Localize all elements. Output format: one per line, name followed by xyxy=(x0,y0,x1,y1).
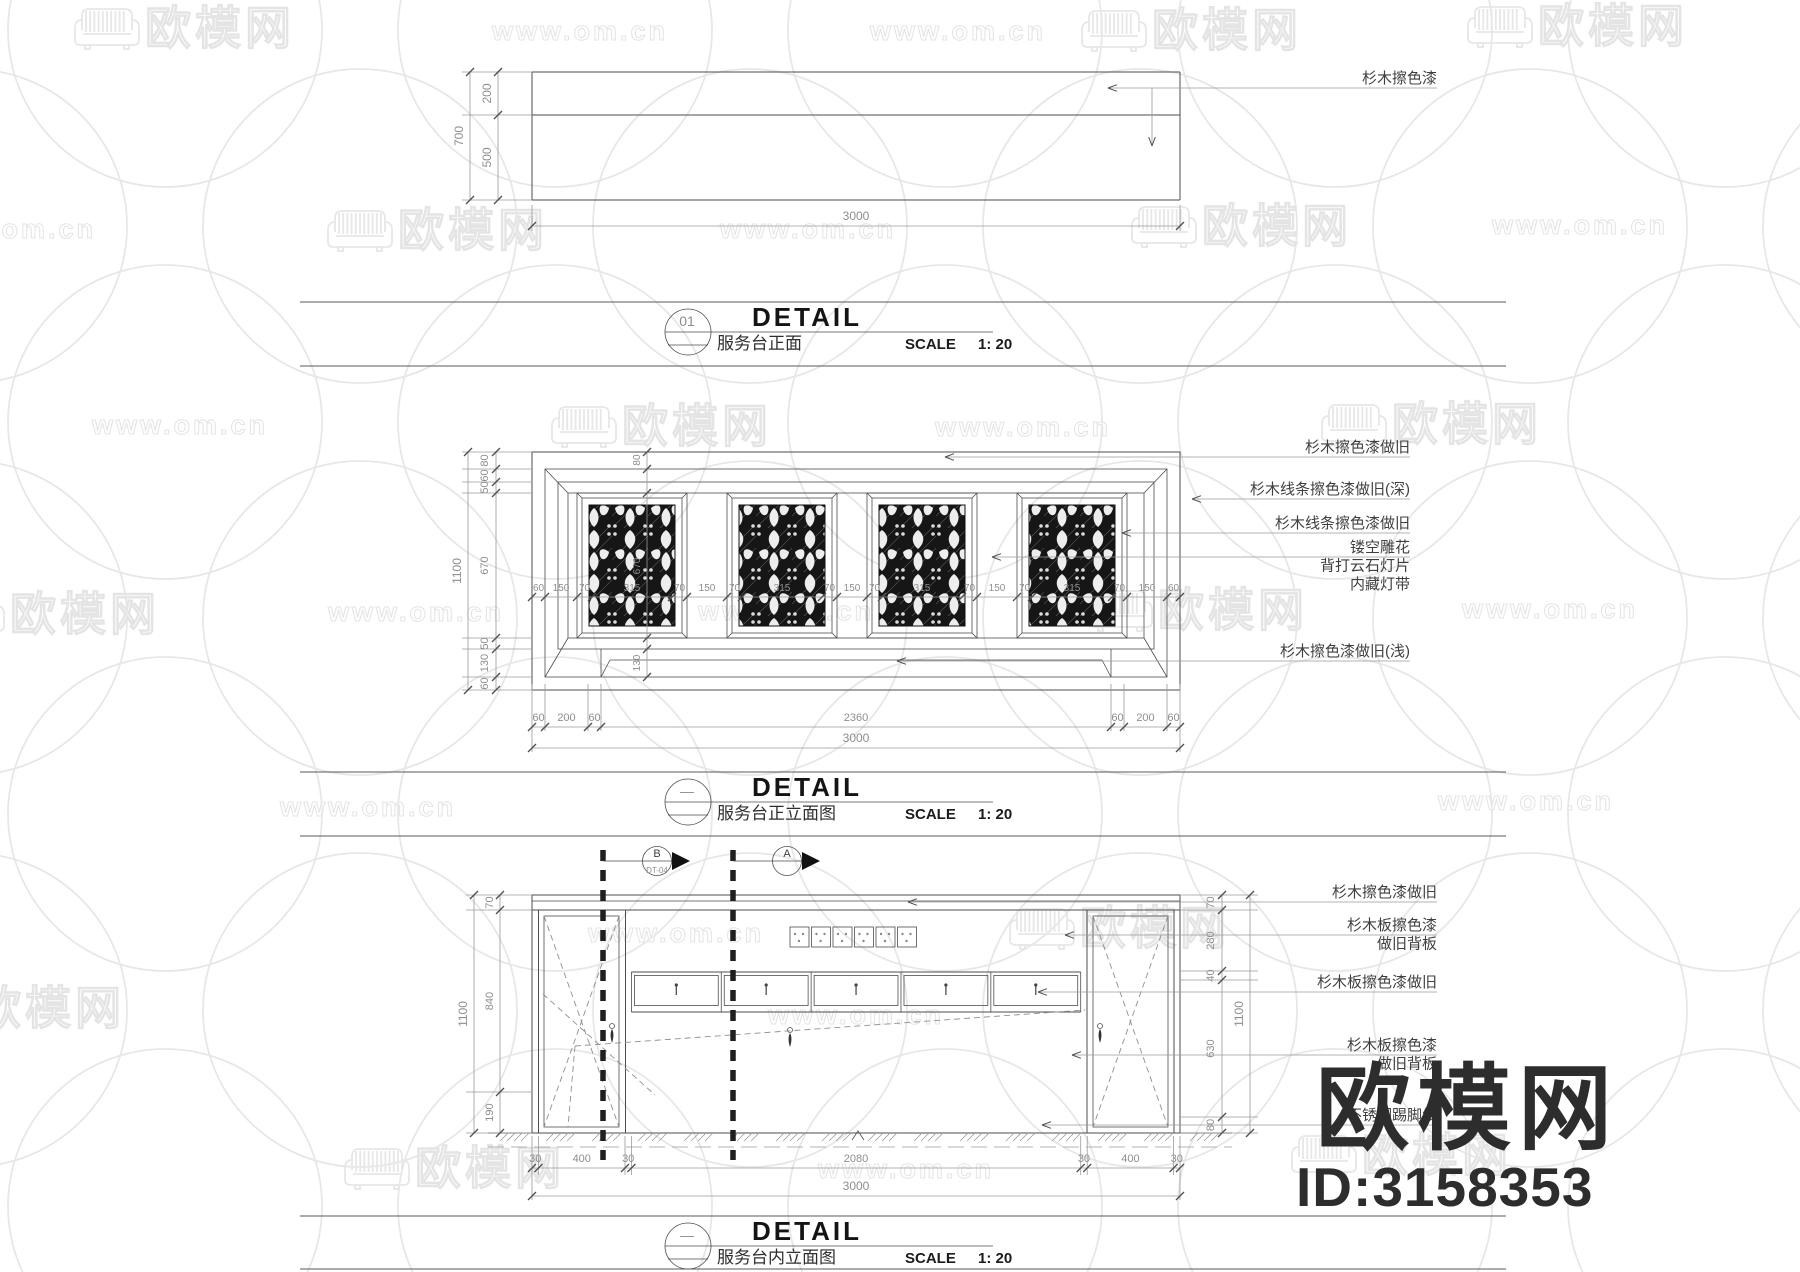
dim-label: 70 xyxy=(674,583,686,594)
dim-label: 70 xyxy=(1019,583,1031,594)
watermark-brand-text: 欧模网 xyxy=(1538,0,1688,52)
title-block-2: —DETAIL服务台正立面图SCALE1: 20 xyxy=(300,772,1506,836)
sofa-icon xyxy=(328,211,392,251)
carved-panel xyxy=(867,493,977,638)
watermark-brand-text: 欧模网 xyxy=(1152,4,1302,56)
dim-label: 70 xyxy=(1114,583,1126,594)
annotation-text: 内藏灯带 xyxy=(1350,576,1410,593)
watermark-url-text: www.om.cn xyxy=(767,1000,944,1030)
sofa-icon xyxy=(1132,207,1196,247)
scale-label: SCALE xyxy=(905,1250,956,1267)
section-marker-b: BDT-04 xyxy=(603,847,690,1161)
annotation-text: 杉木线条擦色漆做旧(深) xyxy=(1250,481,1410,498)
dim-label: 190 xyxy=(484,1103,496,1121)
door-handle xyxy=(610,1024,615,1044)
dim-label: 3000 xyxy=(843,731,870,745)
dim-label: 60 xyxy=(479,469,491,481)
scale-value: 1: 20 xyxy=(978,1250,1012,1267)
dim-label: 1100 xyxy=(456,1001,470,1027)
dim-label: 70 xyxy=(964,583,976,594)
model-id: ID:3158353 xyxy=(1296,1160,1593,1215)
dim-label: 3000 xyxy=(843,209,870,223)
door-handle xyxy=(1098,1024,1103,1044)
watermark-brand-text: 欧模网 xyxy=(145,2,295,54)
detail-title: DETAIL xyxy=(752,302,862,332)
watermark-brand-text: 欧模网 xyxy=(1202,200,1352,252)
detail-number: — xyxy=(680,1227,694,1243)
watermark-url-text: www.om.cn xyxy=(91,410,268,440)
sofa-icon xyxy=(0,595,4,635)
dim-label: 670 xyxy=(632,557,643,574)
detail-subtitle: 服务台内立面图 xyxy=(717,1248,836,1267)
annotation-text: 杉木擦色漆 xyxy=(1362,70,1437,87)
watermark-circle xyxy=(1763,461,1800,775)
dim-label: 50 xyxy=(479,481,491,493)
dim-label: 70 xyxy=(1205,896,1217,908)
dim-label: 670 xyxy=(479,556,491,574)
watermark-brand-text: 欧模网 xyxy=(1392,398,1542,450)
sofa-icon xyxy=(1082,11,1146,51)
dim-label: 30 xyxy=(622,1153,634,1165)
watermark-url-text: www.om.cn xyxy=(0,214,96,244)
watermark-brand-text: 欧模网 xyxy=(622,400,772,452)
detail-subtitle: 服务台正面 xyxy=(717,334,802,353)
title-block-3: —DETAIL服务台内立面图SCALE1: 20 xyxy=(300,1216,1506,1269)
watermark-circle xyxy=(8,657,322,971)
dim-label: 70 xyxy=(579,583,591,594)
dim-label: 150 xyxy=(553,583,570,594)
watermark-circle xyxy=(1763,69,1800,383)
watermark-url-text: www.om.cn xyxy=(1491,210,1668,240)
annotation-text: 杉木线条擦色漆做旧 xyxy=(1275,515,1410,532)
scale-label: SCALE xyxy=(905,336,956,353)
section-label: B xyxy=(653,848,660,860)
watermark-url-text: www.om.cn xyxy=(279,792,456,822)
watermark-circle xyxy=(1568,265,1800,579)
watermark-url-text: www.om.cn xyxy=(719,214,896,244)
carving-pattern xyxy=(879,505,965,626)
dim-label: 3000 xyxy=(843,1179,870,1193)
dim-label: 315 xyxy=(624,583,641,594)
detail-subtitle: 服务台正立面图 xyxy=(717,804,836,823)
dim-label: 315 xyxy=(914,583,931,594)
dim-label: 60 xyxy=(1168,583,1180,594)
watermark-brand-text: 欧模网 xyxy=(10,588,160,640)
dim-label: 70 xyxy=(484,896,496,908)
detail-number: 01 xyxy=(679,313,695,329)
dim-label: 200 xyxy=(1136,712,1154,724)
detail-number: — xyxy=(680,783,694,799)
dim-label: 60 xyxy=(533,583,545,594)
socket-icon xyxy=(812,927,831,947)
carved-panel xyxy=(1017,493,1127,638)
watermark-circle xyxy=(8,1049,322,1272)
annotation-text: 做旧背板 xyxy=(1377,935,1437,953)
annotation-text: 背打云石灯片 xyxy=(1320,558,1410,575)
dim-label: 130 xyxy=(479,654,491,672)
watermark-url-text: www.om.cn xyxy=(1437,786,1614,816)
dim-label: 400 xyxy=(573,1153,591,1165)
watermark-url-text: www.om.cn xyxy=(587,918,764,948)
title-block-1: 01DETAIL服务台正面SCALE1: 20 xyxy=(300,302,1506,366)
dim-label: 1100 xyxy=(450,558,464,584)
dim-label: 60 xyxy=(1167,712,1179,724)
watermark-circle xyxy=(1763,853,1800,1167)
dim-label: 70 xyxy=(869,583,881,594)
watermark-brand-text: 欧模网 xyxy=(0,982,125,1034)
dim-label: 50 xyxy=(479,637,491,649)
dim-label: 30 xyxy=(1171,1153,1183,1165)
watermark-url-text: www.om.cn xyxy=(869,16,1046,46)
dim-label: 315 xyxy=(774,583,791,594)
socket-icon xyxy=(833,927,852,947)
detail-title: DETAIL xyxy=(752,1216,862,1246)
section-sheet: DT-04 xyxy=(646,866,668,875)
dim-label: 40 xyxy=(1205,969,1217,981)
dim-label: 200 xyxy=(480,83,494,103)
dim-label: 150 xyxy=(1139,583,1156,594)
dim-label: 150 xyxy=(989,583,1006,594)
scale-value: 1: 20 xyxy=(978,336,1012,353)
section-arrow xyxy=(672,852,690,870)
dim-label: 400 xyxy=(1121,1153,1139,1165)
carved-panel xyxy=(727,493,837,638)
dim-label: 2080 xyxy=(844,1153,868,1165)
annotation-text: 杉木板擦色漆做旧 xyxy=(1317,973,1437,991)
dim-label: 500 xyxy=(480,147,494,167)
annotation-text: 杉木擦色漆做旧 xyxy=(1332,884,1437,901)
dim-label: 70 xyxy=(824,583,836,594)
dim-label: 60 xyxy=(479,677,491,689)
dim-label: 200 xyxy=(557,712,575,724)
site-logo: 欧模网 xyxy=(1316,1062,1619,1156)
dim-label: 840 xyxy=(484,992,496,1010)
detail-title: DETAIL xyxy=(752,772,862,802)
dim-label: 150 xyxy=(844,583,861,594)
dim-label: 700 xyxy=(452,126,466,146)
scale-label: SCALE xyxy=(905,806,956,823)
watermark-url-text: www.om.cn xyxy=(491,16,668,46)
socket-icon xyxy=(790,927,809,947)
carving-pattern xyxy=(739,505,825,626)
annotation-text: 杉木板擦色漆 xyxy=(1347,1036,1437,1054)
dim-label: 1100 xyxy=(1232,1001,1246,1027)
annotation-text: 杉木擦色漆做旧(浅) xyxy=(1280,643,1410,660)
dim-label: 60 xyxy=(532,712,544,724)
dim-label: 280 xyxy=(1205,931,1217,949)
dim-label: 80 xyxy=(479,454,491,466)
drawing-inner-elevation: BDT-04A708401901100702804063080110030400… xyxy=(456,847,1437,1201)
section-label: A xyxy=(783,848,791,860)
dim-label: 30 xyxy=(1078,1153,1090,1165)
annotation-text: 杉木擦色漆做旧 xyxy=(1305,439,1410,456)
scale-value: 1: 20 xyxy=(978,806,1012,823)
dim-label: 2360 xyxy=(844,712,868,724)
dim-label: 60 xyxy=(1111,712,1123,724)
socket-icon xyxy=(898,927,917,947)
sofa-icon xyxy=(552,407,616,447)
dim-label: 150 xyxy=(699,583,716,594)
watermark-brand-text: 欧模网 xyxy=(398,204,548,256)
sofa-icon xyxy=(1468,7,1532,47)
sofa-icon xyxy=(75,9,139,49)
watermark-url-text: www.om.cn xyxy=(1461,594,1638,624)
dim-label: 60 xyxy=(588,712,600,724)
watermark-url-text: www.om.cn xyxy=(934,412,1111,442)
dim-label: 30 xyxy=(529,1153,541,1165)
annotation-text: 镂空雕花 xyxy=(1350,539,1410,556)
cad-sheet: 欧模网欧模网欧模网欧模网欧模网欧模网欧模网欧模网欧模网欧模网欧模网欧模网欧模网w… xyxy=(0,0,1800,1272)
carving-pattern xyxy=(1029,505,1115,626)
dim-label: 80 xyxy=(632,454,643,466)
dim-label: 130 xyxy=(632,654,643,671)
dim-label: 315 xyxy=(1064,583,1081,594)
annotation-text: 杉木板擦色漆 xyxy=(1347,916,1437,934)
watermark-url-text: www.om.cn xyxy=(327,597,504,627)
dim-label: 70 xyxy=(729,583,741,594)
